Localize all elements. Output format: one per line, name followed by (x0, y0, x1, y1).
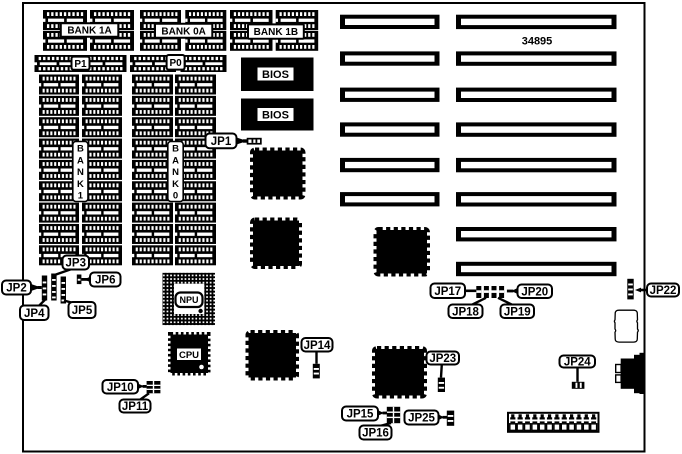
svg-text:BANK 0A: BANK 0A (161, 26, 205, 37)
svg-text:JP6: JP6 (95, 275, 115, 287)
svg-text:BANK 1A: BANK 1A (67, 26, 111, 37)
svg-text:BANK0: BANK0 (172, 144, 179, 202)
svg-text:JP20: JP20 (521, 286, 548, 298)
svg-text:JP5: JP5 (72, 305, 93, 317)
svg-text:JP2: JP2 (6, 283, 26, 295)
svg-text:34895: 34895 (522, 36, 553, 48)
svg-text:CPU: CPU (179, 350, 199, 361)
svg-text:BIOS: BIOS (262, 69, 289, 81)
svg-text:JP10: JP10 (107, 382, 134, 394)
svg-text:JP4: JP4 (24, 308, 45, 320)
svg-text:JP18: JP18 (452, 306, 479, 318)
svg-text:JP19: JP19 (504, 306, 531, 318)
svg-text:JP1: JP1 (211, 136, 232, 148)
svg-text:JP24: JP24 (564, 357, 591, 369)
svg-text:JP16: JP16 (362, 428, 389, 440)
svg-text:BANK1: BANK1 (77, 144, 84, 202)
svg-text:BANK 1B: BANK 1B (254, 27, 298, 38)
svg-text:NPU: NPU (179, 295, 198, 305)
svg-text:P1: P1 (74, 59, 87, 70)
svg-text:JP25: JP25 (408, 413, 435, 425)
svg-text:JP14: JP14 (304, 340, 331, 352)
svg-text:P0: P0 (169, 58, 182, 69)
svg-text:JP17: JP17 (434, 286, 461, 298)
svg-text:JP23: JP23 (429, 353, 456, 365)
svg-text:JP11: JP11 (122, 401, 149, 413)
svg-text:BIOS: BIOS (262, 110, 289, 122)
svg-text:JP22: JP22 (650, 285, 677, 297)
svg-text:JP15: JP15 (347, 409, 374, 421)
svg-text:JP3: JP3 (66, 258, 86, 270)
